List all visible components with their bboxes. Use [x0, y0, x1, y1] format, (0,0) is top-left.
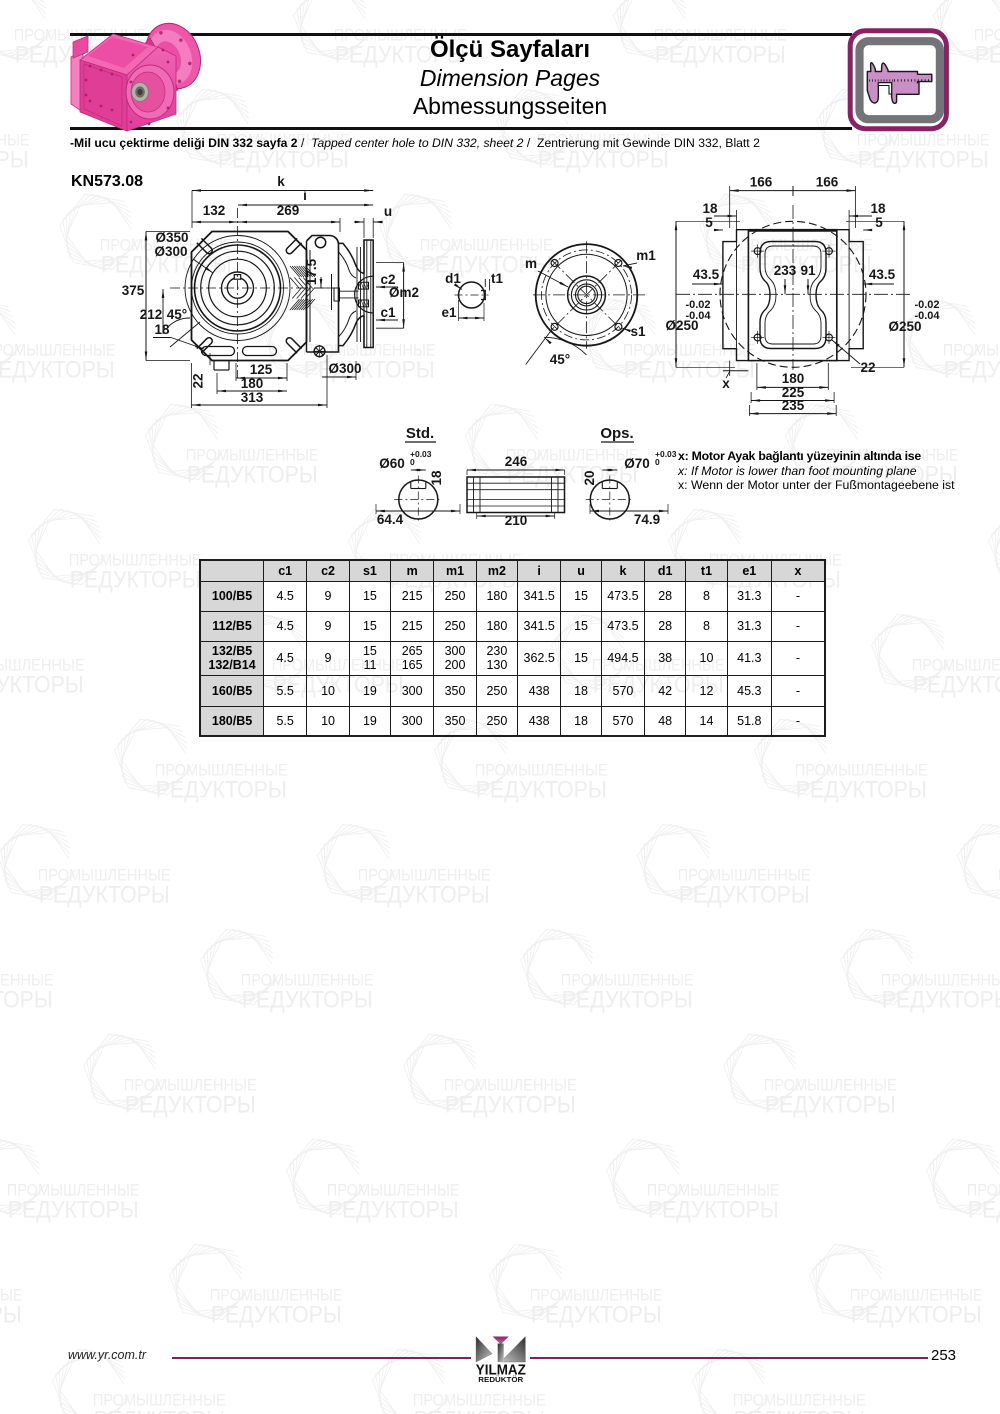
svg-text:s1: s1 — [630, 324, 646, 339]
svg-text:18: 18 — [702, 201, 718, 216]
svg-text:d1: d1 — [445, 271, 461, 286]
svg-text:18: 18 — [154, 322, 170, 337]
svg-text:313: 313 — [241, 390, 264, 405]
svg-text:t1: t1 — [491, 271, 503, 286]
svg-text:233: 233 — [774, 263, 797, 278]
svg-text:x: x — [722, 376, 730, 391]
svg-text:210: 210 — [505, 513, 528, 528]
svg-text:Ø300: Ø300 — [154, 244, 187, 259]
svg-text:45°: 45° — [550, 352, 570, 367]
svg-text:125: 125 — [250, 362, 273, 377]
svg-text:375: 375 — [122, 283, 145, 298]
svg-text:246: 246 — [505, 454, 528, 469]
svg-text:91: 91 — [800, 263, 816, 278]
svg-text:5: 5 — [705, 215, 713, 230]
svg-text:64.4: 64.4 — [377, 512, 404, 527]
svg-text:m: m — [525, 256, 537, 271]
svg-text:166: 166 — [750, 175, 773, 190]
svg-text:e1: e1 — [441, 305, 457, 320]
svg-text:0: 0 — [410, 457, 415, 467]
svg-text:20: 20 — [582, 470, 597, 485]
svg-text:m1: m1 — [636, 248, 656, 263]
svg-text:180: 180 — [782, 371, 805, 386]
svg-text:18: 18 — [870, 201, 886, 216]
svg-text:k: k — [277, 174, 285, 189]
svg-text:22: 22 — [860, 360, 875, 375]
svg-text:Ø350: Ø350 — [155, 230, 188, 245]
svg-text:166: 166 — [816, 175, 839, 190]
svg-text:74.9: 74.9 — [634, 512, 660, 527]
svg-text:Ø60: Ø60 — [379, 456, 405, 471]
svg-text:u: u — [384, 204, 392, 219]
svg-text:180: 180 — [241, 376, 264, 391]
svg-text:18: 18 — [429, 470, 444, 486]
svg-text:212: 212 — [140, 307, 163, 322]
svg-text:17.5: 17.5 — [304, 258, 319, 285]
svg-text:Std.: Std. — [406, 425, 434, 442]
svg-text:Ops.: Ops. — [600, 425, 633, 442]
svg-text:43.5: 43.5 — [693, 267, 720, 282]
svg-text:Ø250: Ø250 — [665, 318, 698, 333]
svg-text:43.5: 43.5 — [869, 267, 896, 282]
svg-text:Ø250: Ø250 — [888, 319, 921, 334]
svg-text:Ø70: Ø70 — [624, 456, 650, 471]
svg-text:45°: 45° — [167, 307, 187, 322]
svg-text:269: 269 — [277, 203, 300, 218]
svg-text:REDÜKTÖR: REDÜKTÖR — [478, 1375, 523, 1384]
svg-text:0: 0 — [655, 457, 660, 467]
svg-text:i: i — [303, 188, 307, 203]
svg-text:132: 132 — [203, 203, 226, 218]
svg-text:5: 5 — [875, 215, 883, 230]
svg-text:c1: c1 — [380, 305, 396, 320]
svg-text:Ø300: Ø300 — [328, 361, 361, 376]
svg-text:22: 22 — [191, 373, 206, 388]
svg-text:235: 235 — [782, 398, 805, 413]
